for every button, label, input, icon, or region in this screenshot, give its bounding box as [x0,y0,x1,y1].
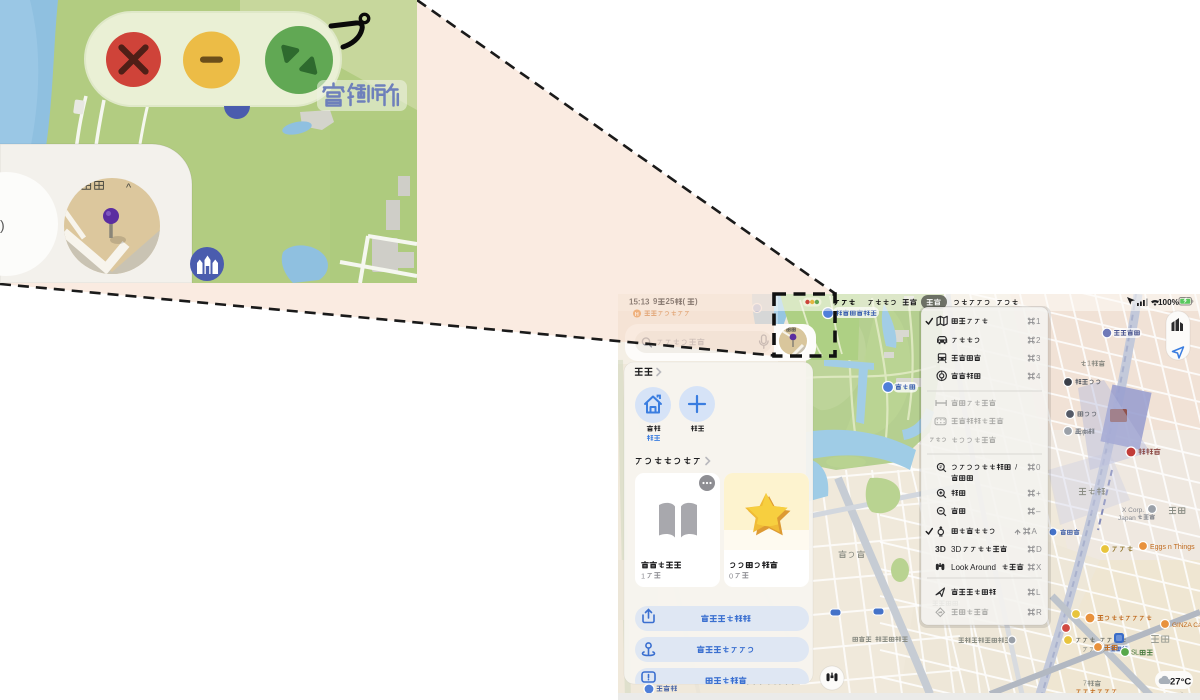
svg-text:7: 7 [1083,681,1087,688]
svg-text:3: 3 [1036,354,1041,363]
svg-text:L: L [1135,650,1139,657]
svg-text:A: A [1032,527,1038,536]
svg-text:1: 1 [1087,361,1091,368]
svg-text:R: R [1036,608,1042,617]
svg-text:3D: 3D [935,544,946,554]
svg-text:27°C: 27°C [1170,677,1191,688]
svg-text:D: D [1036,545,1042,554]
svg-text:–: – [1036,507,1041,516]
svg-text:Look Around: Look Around [951,563,996,572]
svg-text:^: ^ [126,182,132,194]
svg-text:1: 1 [1036,317,1041,326]
svg-text:): ) [0,217,5,233]
svg-text:X Corp.: X Corp. [1122,507,1144,514]
svg-text:X: X [1036,563,1042,572]
svg-text:0: 0 [729,572,733,581]
svg-text:2: 2 [1036,336,1041,345]
svg-text:0: 0 [1036,463,1041,472]
svg-text:Eggs n Things: Eggs n Things [1150,544,1195,551]
svg-text:Japan: Japan [1118,515,1136,522]
svg-text:1: 1 [641,572,645,581]
svg-text:GINZA Caf: GINZA Caf [1172,622,1200,629]
svg-text:L: L [1036,588,1041,597]
svg-text:+: + [1036,489,1041,498]
svg-text:100%: 100% [1158,298,1180,307]
svg-text:4: 4 [1036,372,1041,381]
svg-text:3D: 3D [951,545,961,554]
